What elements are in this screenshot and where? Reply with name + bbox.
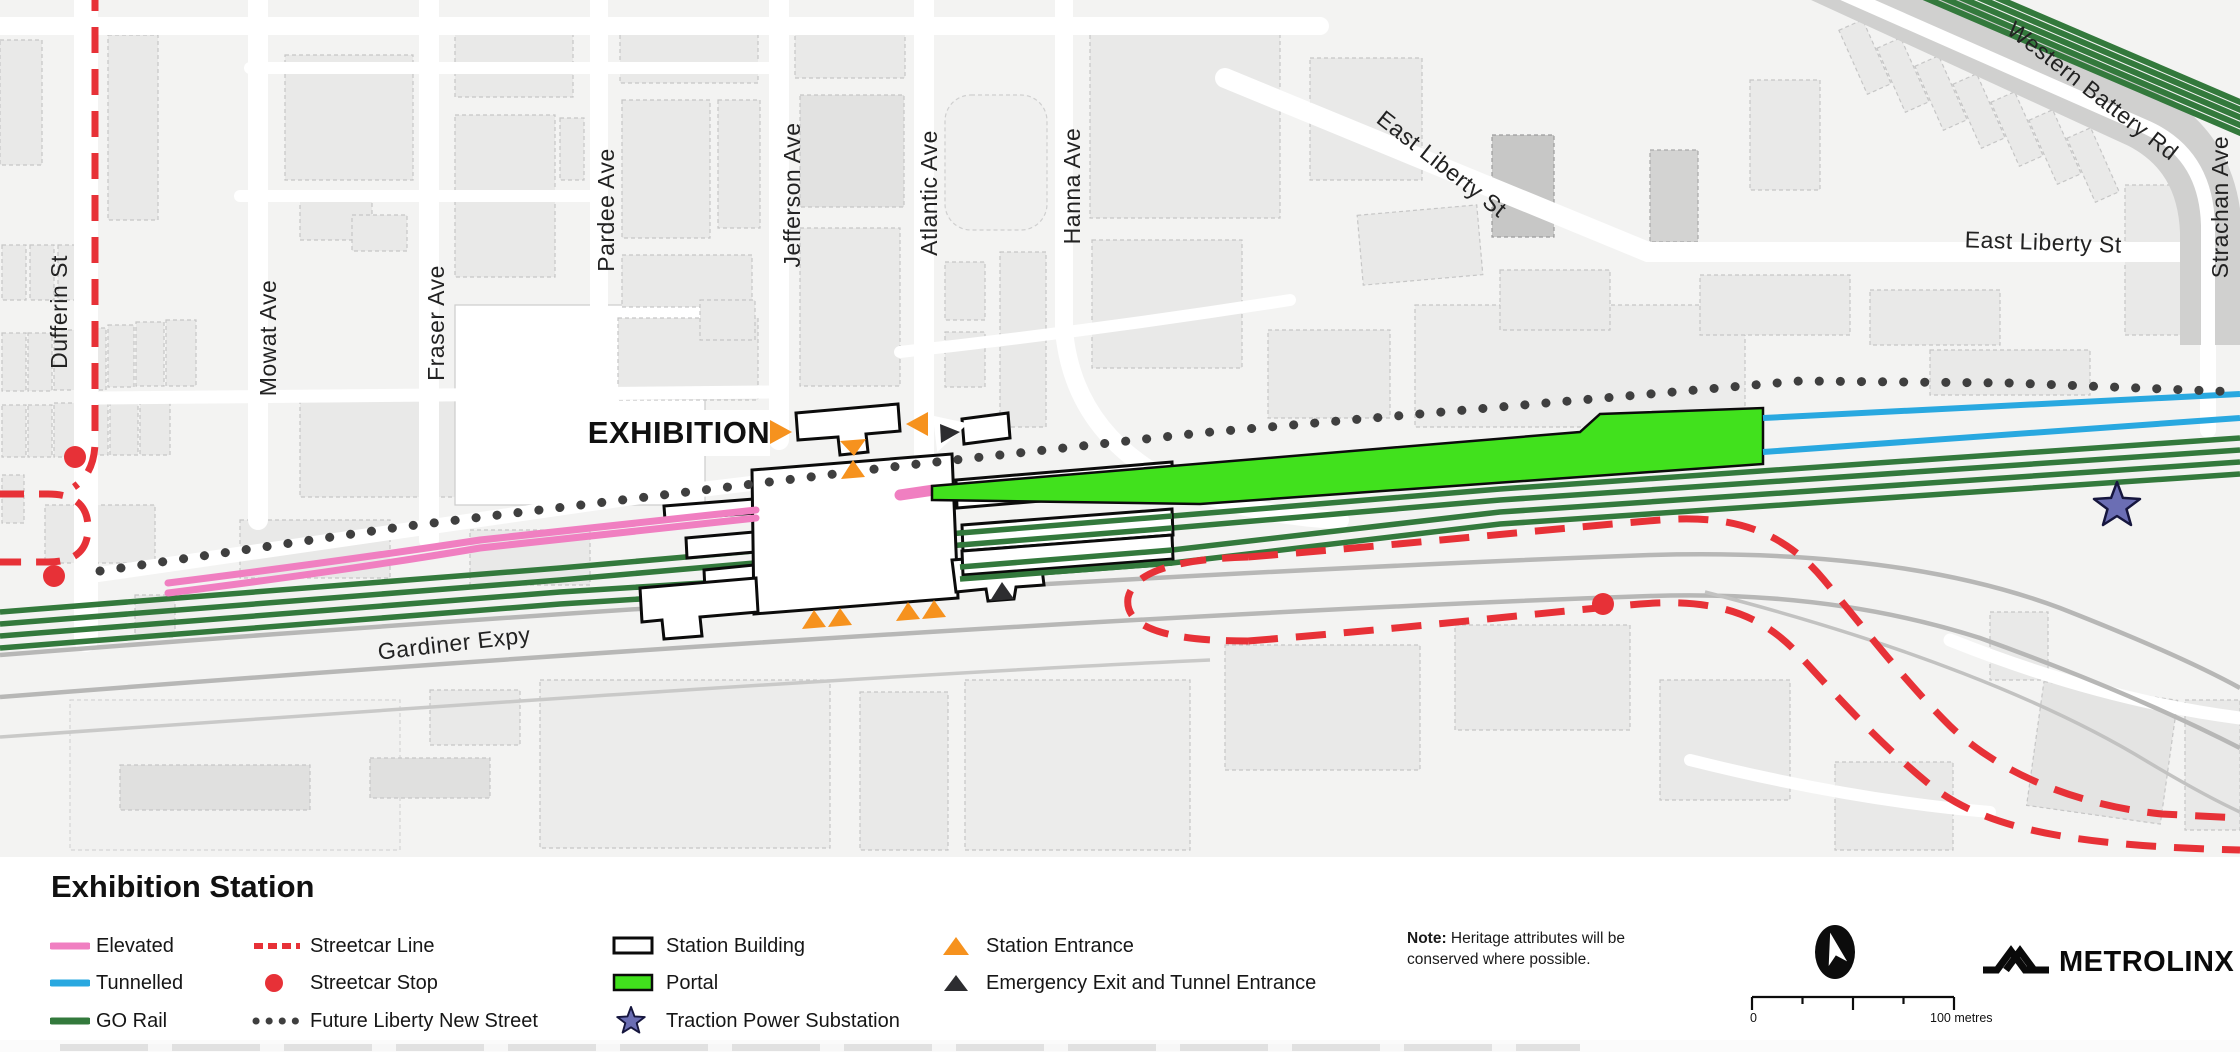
legend-title: Exhibition Station — [51, 869, 315, 905]
street-label-mowat: Mowat Ave — [255, 280, 281, 397]
metrolinx-logo-icon — [1983, 943, 2049, 982]
legend-label: Traction Power Substation — [666, 1010, 900, 1033]
legend-item-traction: Traction Power Substation — [612, 1007, 900, 1035]
street-label-pardee: Pardee Ave — [593, 148, 619, 272]
future-street-swatch-icon — [252, 1016, 310, 1026]
street-label-hanna: Hanna Ave — [1059, 128, 1085, 245]
legend-label: Elevated — [96, 935, 174, 958]
station-main-hall — [752, 454, 958, 614]
legend-label: Station Building — [666, 935, 805, 958]
streetcar-stop-swatch-icon — [252, 973, 310, 993]
station-entrance-swatch-icon — [940, 934, 986, 958]
legend-item-station-building: Station Building — [612, 932, 805, 960]
legend-label: Streetcar Stop — [310, 972, 438, 995]
legend-item-streetcar-line: Streetcar Line — [252, 932, 435, 960]
street-label-fraser: Fraser Ave — [423, 265, 449, 381]
street-label-jefferson: Jefferson Ave — [779, 122, 805, 267]
street-label-dufferin: Dufferin St — [46, 255, 72, 369]
legend-panel: Exhibition Station Elevated Tunnelled GO… — [0, 857, 2240, 1040]
legend-label: Future Liberty New Street — [310, 1010, 538, 1033]
street-label-strachan: Strachan Ave — [2207, 136, 2233, 278]
portal-swatch-icon — [612, 973, 666, 993]
streetcar-stop — [43, 565, 65, 587]
legend-item-streetcar-stop: Streetcar Stop — [252, 969, 438, 997]
streetcar-stop — [64, 446, 86, 468]
legend-label: GO Rail — [96, 1010, 167, 1033]
legend-item-future-liberty: Future Liberty New Street — [252, 1007, 538, 1035]
note-label: Note: — [1407, 930, 1447, 947]
tunnelled-line-swatch-icon — [50, 978, 96, 988]
street-label-atlantic: Atlantic Ave — [916, 130, 942, 256]
legend-item-go-rail: GO Rail — [50, 1007, 167, 1035]
map-svg: EXHIBITION Dufferin St Mowat Ave Fraser … — [0, 0, 2240, 857]
legend-item-tunnelled: Tunnelled — [50, 969, 183, 997]
legend-item-emergency: Emergency Exit and Tunnel Entrance — [940, 969, 1316, 997]
streetcar-line-swatch-icon — [252, 941, 310, 951]
metrolinx-wordmark: METROLINX — [2059, 946, 2234, 979]
streetcar-stop — [1592, 593, 1614, 615]
elevated-line-swatch-icon — [50, 941, 96, 951]
map-canvas: EXHIBITION Dufferin St Mowat Ave Fraser … — [0, 0, 2240, 857]
street-label-east-liberty-east: East Liberty St — [1964, 226, 2122, 257]
north-arrow-icon — [1812, 923, 1858, 986]
station-name-text: EXHIBITION — [588, 415, 770, 450]
scale-bar: 0 100 metres — [1750, 995, 1960, 1016]
metrolinx-brand: METROLINX — [1983, 943, 2234, 982]
map-sliver — [0, 1040, 2240, 1052]
sliver-strip — [60, 1044, 1580, 1051]
station-name-label: EXHIBITION — [588, 410, 770, 456]
legend-label: Station Entrance — [986, 935, 1134, 958]
heritage-note: Note: Heritage attributes will be conser… — [1407, 929, 1659, 971]
legend-label: Emergency Exit and Tunnel Entrance — [986, 972, 1316, 995]
station-building-northeast — [962, 413, 1010, 444]
scale-start-label: 0 — [1750, 1011, 1757, 1025]
traction-substation-swatch-icon — [612, 1006, 666, 1036]
go-rail-swatch-icon — [50, 1016, 96, 1026]
emergency-exit-swatch-icon — [940, 971, 986, 995]
legend-item-station-entrance: Station Entrance — [940, 932, 1134, 960]
station-platform-west-2 — [686, 532, 755, 558]
legend-label: Streetcar Line — [310, 935, 435, 958]
station-building-swatch-icon — [612, 936, 666, 956]
legend-item-elevated: Elevated — [50, 932, 174, 960]
legend-label: Portal — [666, 972, 718, 995]
legend-item-portal: Portal — [612, 969, 718, 997]
exhibition-station-map-page: EXHIBITION Dufferin St Mowat Ave Fraser … — [0, 0, 2240, 1052]
scale-end-label: 100 metres — [1930, 1011, 1993, 1025]
legend-label: Tunnelled — [96, 972, 183, 995]
